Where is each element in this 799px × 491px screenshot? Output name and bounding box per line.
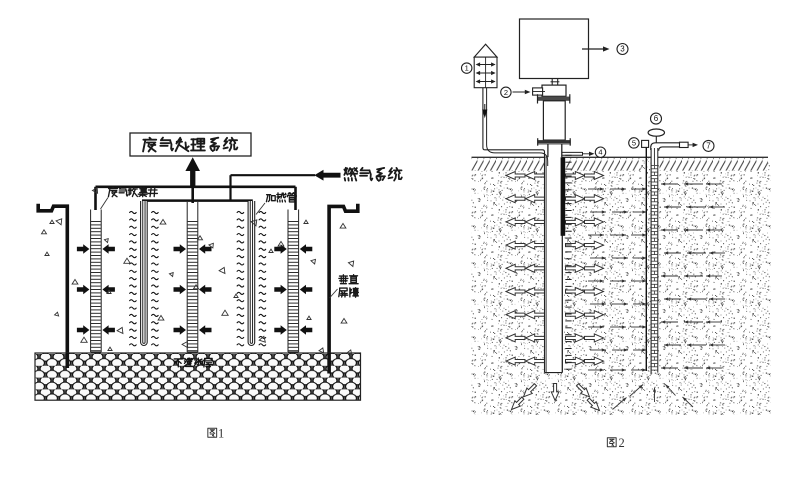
svg-text:4: 4 bbox=[598, 148, 602, 157]
svg-text:7: 7 bbox=[706, 141, 711, 150]
svg-text:1: 1 bbox=[465, 64, 469, 73]
svg-text:2: 2 bbox=[619, 436, 625, 450]
svg-text:3: 3 bbox=[620, 45, 625, 54]
svg-text:2: 2 bbox=[504, 88, 508, 97]
svg-text:6: 6 bbox=[654, 114, 659, 123]
svg-text:1: 1 bbox=[218, 427, 224, 441]
svg-text:5: 5 bbox=[632, 138, 636, 147]
